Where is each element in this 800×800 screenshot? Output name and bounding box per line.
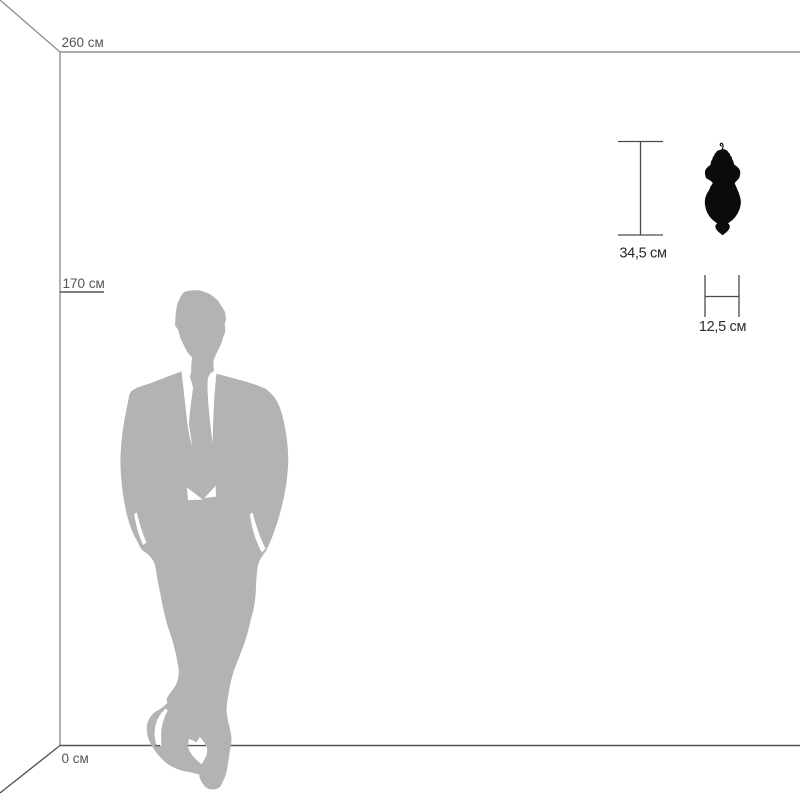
svg-text:34,5 см: 34,5 см (619, 246, 666, 262)
svg-text:0 см: 0 см (62, 751, 89, 766)
svg-text:260 см: 260 см (62, 35, 104, 50)
svg-text:12,5 см: 12,5 см (699, 319, 746, 335)
svg-text:170 см: 170 см (63, 276, 105, 291)
